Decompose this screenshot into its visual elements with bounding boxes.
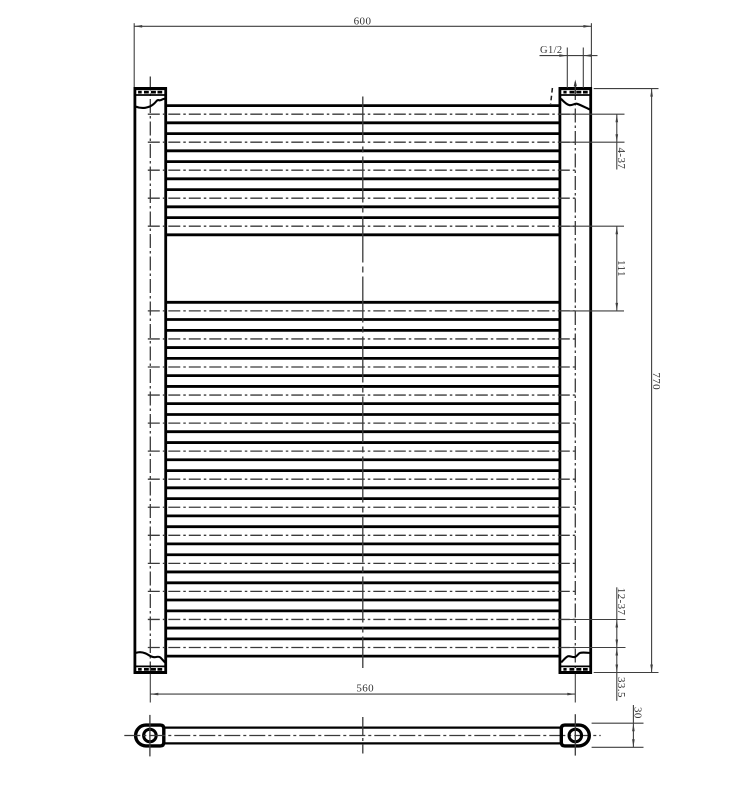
svg-text:30: 30 (632, 707, 644, 719)
svg-text:12-37: 12-37 (615, 588, 627, 616)
svg-text:600: 600 (354, 16, 372, 28)
svg-text:111: 111 (615, 260, 627, 277)
svg-text:33.5: 33.5 (615, 677, 627, 698)
svg-text:G1/2: G1/2 (540, 45, 563, 56)
svg-text:560: 560 (356, 682, 374, 694)
svg-text:4-37: 4-37 (615, 148, 627, 170)
svg-text:770: 770 (650, 372, 662, 390)
